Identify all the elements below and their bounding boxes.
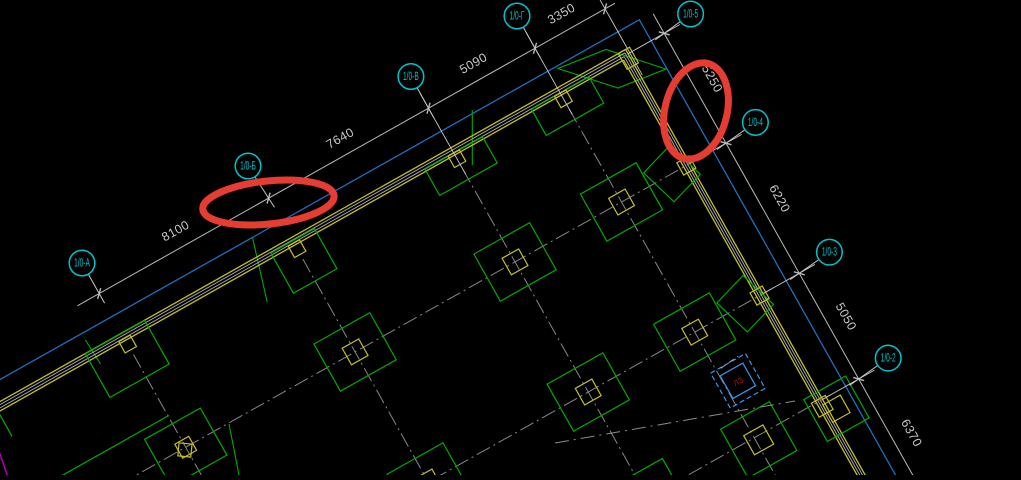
svg-text:1/0-Б: 1/0-Б [240, 159, 256, 173]
svg-text:1/0-Г: 1/0-Г [510, 9, 525, 23]
svg-text:1/0-А: 1/0-А [74, 256, 90, 270]
svg-text:1/0-3: 1/0-3 [822, 245, 837, 259]
svg-text:1/0-5: 1/0-5 [683, 7, 698, 21]
svg-text:1/0-4: 1/0-4 [748, 115, 763, 129]
svg-text:1/0-2: 1/0-2 [881, 351, 896, 365]
svg-text:1/0-В: 1/0-В [403, 69, 419, 83]
